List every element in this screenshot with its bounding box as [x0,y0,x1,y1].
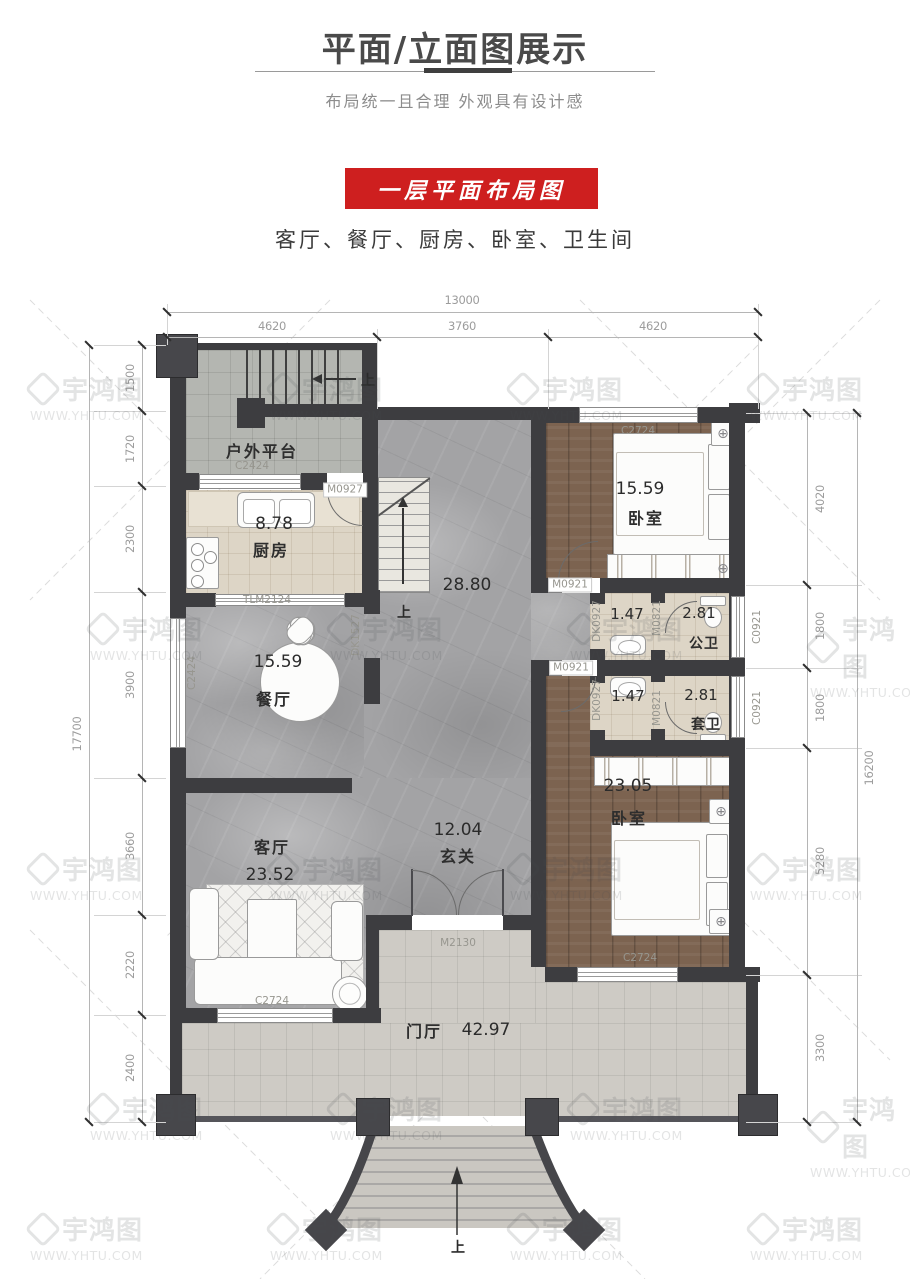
wall [531,417,546,583]
area-bath-public: 2.81 [682,604,715,622]
arrow-up-icon [398,497,408,507]
armchair [331,901,363,961]
label-window-c0921: C0921 [751,691,763,725]
window-c2724 [577,967,678,982]
room-label-foyer: 玄关 [440,843,476,867]
room-label-kitchen: 厨房 [253,537,289,561]
ext-line [746,413,862,414]
coffee-table [247,899,297,961]
area-hall: 28.80 [443,575,492,595]
label-window-c2724: C2724 [623,952,657,964]
sofa-side [189,888,219,960]
dim-right-seg: 5280 [813,847,827,875]
window-c2424 [199,474,301,489]
section-banner: 一层平面布局图 [345,168,598,209]
label-opening-dk1527: DK1527 [350,614,362,656]
wall [651,672,665,682]
room-label-platform: 户外平台 [226,438,298,462]
watermark: 宇鸿图 WWW.YHTU.COM [30,1210,143,1263]
label-window-c2724: C2724 [621,425,655,437]
up-label: 上 [451,1237,465,1257]
window-c2424 [170,618,186,748]
watermark-url: WWW.YHTU.COM [510,1248,623,1263]
wall [170,1008,217,1023]
watermark-brand: 宇鸿图 [782,1210,863,1247]
ext-line [746,585,862,586]
dim-right-seg: 1800 [813,612,827,640]
wall [186,473,199,490]
dim-left-seg: 3660 [123,832,137,860]
area-living: 23.52 [246,865,295,885]
porch-edge [182,1116,374,1122]
area-vestibule1: 1.47 [610,605,643,623]
window-c0921 [731,676,745,738]
watermark-brand: 宇鸿图 [302,1210,383,1247]
ext-line [94,1015,166,1016]
floor-porch-east [546,982,758,1023]
ext-line [758,304,759,409]
brand-logo-icon [25,1210,62,1247]
watermark-brand: 宇鸿图 [542,370,623,407]
dim-total-top: 13000 [444,293,479,307]
wall [597,660,745,676]
lamp-icon: ⊕ [717,426,729,442]
wall [364,658,380,704]
watermark-brand: 宇鸿图 [542,1210,623,1247]
ext-line [94,778,166,779]
label-door-m0921: M0921 [548,578,592,593]
wall [364,590,380,614]
brand-logo-icon [25,370,62,407]
brand-logo-icon [805,1109,842,1146]
ext-line [746,1122,862,1123]
label-door-m2130: M2130 [440,937,476,949]
pillow [708,494,730,540]
floor-hall-bath-entry [531,593,590,660]
wall [186,343,362,350]
bed-blanket [614,840,700,920]
watermark-url: WWW.YHTU.COM [750,1248,863,1263]
washbasin [610,635,646,655]
window-c2724 [217,1008,333,1023]
dim-left-seg: 2220 [123,951,137,979]
label-door-m0921: M0921 [549,661,593,676]
wall [333,1008,381,1023]
ext-line [94,592,166,593]
dim-line [857,413,858,1122]
area-porch: 42.97 [462,1020,511,1040]
ext-line [746,668,862,669]
room-label-bedroom2: 卧室 [611,805,647,829]
wall [545,407,579,423]
column [156,1094,196,1136]
watermark-url: WWW.YHTU.COM [30,1248,143,1263]
watermark-url: WWW.YHTU.COM [810,1165,910,1180]
label-door-m0927: M0927 [323,483,367,498]
dim-line [167,337,758,338]
watermark: 宇鸿图 WWW.YHTU.COM [270,1210,383,1263]
ext-line [548,329,549,409]
watermark-brand: 宇鸿图 [782,370,863,407]
area-bedroom1: 15.59 [616,479,665,499]
porch-edge [531,1116,758,1122]
ext-line [94,345,166,346]
watermark-brand: 宇鸿图 [842,610,910,684]
arrow-left-icon [312,374,322,384]
wall [170,778,352,793]
wall [366,915,412,930]
wall [503,915,546,930]
basin [618,640,641,654]
area-vestibule2: 1.47 [611,687,644,705]
watermark: 宇鸿图 WWW.YHTU.COM [510,1210,623,1263]
dim-line [807,413,808,1122]
label-window-c2724: C2724 [255,995,289,1007]
column [738,1094,778,1136]
dim-top-seg: 4620 [258,319,286,333]
watermark-url: WWW.YHTU.COM [270,1248,383,1263]
title-rule-accent [424,68,512,73]
burner [204,551,217,564]
dim-left-seg: 2400 [123,1054,137,1082]
window-c2724 [579,407,698,423]
dim-left-seg: 1500 [123,364,137,392]
lamp-icon: ⊕ [717,561,729,577]
label-window-c0921: C0921 [751,610,763,644]
ext-line [94,1122,166,1123]
up-label: 上 [397,602,411,622]
dim-line [142,345,143,1122]
brand-logo-icon [505,1210,542,1247]
column [156,334,198,378]
stove [186,537,219,589]
burner [191,575,204,588]
dim-line [167,312,758,313]
label-door-tlm2124: TLM2124 [243,594,291,606]
dim-right-seg: 4020 [813,485,827,513]
ext-line [94,486,166,487]
brand-logo-icon [265,1210,302,1247]
watermark: 宇鸿图 WWW.YHTU.COM [810,1090,910,1180]
dim-total-right: 16200 [862,750,876,785]
column [356,1098,390,1136]
label-door-m0821: M0821 [651,690,663,726]
room-label-bath-public: 公卫 [689,633,719,653]
dim-left-seg: 2300 [123,525,137,553]
page-title: 平面/立面图展示 [0,22,910,71]
page-subtitle: 布局统一且合理 外观具有设计感 [0,88,910,112]
area-kitchen: 8.78 [255,514,293,534]
dim-line [89,345,90,1122]
wall [651,650,665,662]
window-c0921 [731,596,745,658]
watermark-url: WWW.YHTU.COM [570,1128,683,1143]
pillow [706,834,728,878]
pillow [708,444,730,490]
burner [191,559,204,572]
area-bedroom2: 23.05 [604,776,653,796]
label-door-m0821: M0821 [651,600,663,636]
wall [262,404,366,417]
brand-logo-icon [85,610,122,647]
dim-right-seg: 1800 [813,694,827,722]
stair-landing-block [237,398,265,428]
arrow-line [402,508,404,584]
watermark-brand: 宇鸿图 [842,1090,910,1164]
room-label-porch: 门厅 [406,1018,442,1042]
brand-logo-icon [745,850,782,887]
arrow-line [324,378,356,380]
door-leaf [502,869,504,916]
brand-logo-icon [505,370,542,407]
wall [600,578,745,593]
brand-logo-icon [745,1210,782,1247]
room-label-living: 客厅 [254,834,290,858]
room-label-bath-ensuite: 套卫 [691,714,721,734]
wall [170,593,216,607]
area-foyer: 12.04 [434,820,483,840]
dim-top-seg: 4620 [639,319,667,333]
floor-lamp [332,976,368,1012]
ext-line [746,748,862,749]
dim-left-seg: 1720 [123,435,137,463]
up-label: 上 [361,370,375,390]
lamp-icon: ⊕ [715,804,727,820]
lamp-icon: ⊕ [715,914,727,930]
ext-line [377,329,378,409]
label-opening-dk0927: DK0927 [591,679,603,721]
column [525,1098,559,1136]
dim-top-seg: 3760 [448,319,476,333]
label-window-c2424: C2424 [235,460,269,472]
brand-logo-icon [745,370,782,407]
room-label-dining: 餐厅 [256,686,292,710]
ext-line [94,411,166,412]
label-window-c2424: C2424 [186,656,198,690]
burner [191,543,204,556]
room-list-caption: 客厅、餐厅、厨房、卧室、卫生间 [0,224,910,254]
area-bath-ensuite: 2.81 [684,686,717,704]
wall [345,593,366,607]
watermark-brand: 宇鸿图 [62,1210,143,1247]
door-gap-m2130 [412,915,503,930]
ext-line [746,975,862,976]
room-label-bedroom1: 卧室 [628,505,664,529]
wall [545,967,577,982]
label-opening-dk0927: DK0927 [591,600,603,642]
area-dining: 15.59 [254,652,303,672]
brand-logo-icon [25,850,62,887]
watermark-url: WWW.YHTU.COM [30,888,143,903]
dim-left-seg: 3900 [123,671,137,699]
dim-total-left: 17700 [70,716,84,751]
wall [590,740,745,756]
ext-line [94,915,166,916]
dim-right-seg: 3300 [813,1034,827,1062]
watermark: 宇鸿图 WWW.YHTU.COM [750,1210,863,1263]
floor-plan-page: 平面/立面图展示 布局统一且合理 外观具有设计感 一层平面布局图 客厅、餐厅、厨… [0,0,910,1279]
